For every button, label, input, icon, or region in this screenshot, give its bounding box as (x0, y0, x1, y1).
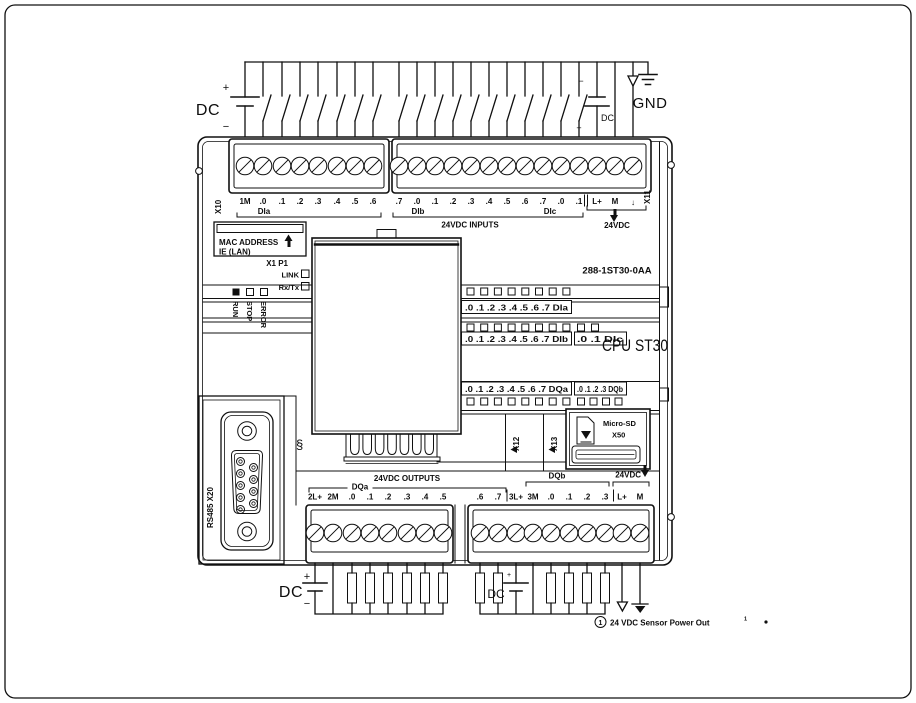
port-x1p1-label: X1 P1 (266, 259, 288, 268)
terminal-label: .7 (540, 197, 547, 206)
battery-plates (504, 583, 528, 591)
terminal-label: .0 (558, 197, 565, 206)
dc2-source-label: DC (487, 587, 505, 601)
load-wires-a (315, 563, 443, 614)
terminal-label: 3L+ (509, 493, 523, 502)
stop-label: STOP (245, 301, 254, 321)
input-wiring: + − DC − + DC GND (196, 62, 668, 141)
dia-row-label: .0 .1 .2 .3 .4 .5 .6 .7 DIa (465, 304, 569, 313)
terminal-label: .5 (352, 197, 359, 206)
terminal-label: .2 (450, 197, 457, 206)
terminal-label: .0 (548, 493, 555, 502)
cpu-model-label: CPU ST30 (602, 337, 668, 355)
terminal-label: .3 (404, 493, 411, 502)
terminal-label: L+ (592, 197, 602, 206)
terminal-label: 3M (527, 493, 538, 502)
input-terminal-strip-b (390, 139, 651, 193)
sensor-out-ground-icon (635, 606, 645, 613)
shield-clamp-icon: § (296, 437, 303, 452)
sensor-out-arrow-icon (617, 602, 627, 611)
gnd-label: GND (633, 95, 668, 112)
terminal-label: .1 (367, 493, 374, 502)
edge-pin (668, 162, 675, 169)
terminal-label: .1 (279, 197, 286, 206)
input-terminal-strip-a (229, 139, 389, 193)
output-loads (348, 573, 610, 603)
dc-source-label: DC (279, 584, 303, 601)
ie-lan-label: IE (LAN) (219, 248, 251, 257)
power-arrow-icon (614, 209, 617, 215)
sensor-supply-arrow-icon (628, 76, 638, 86)
terminal-label: .1 (566, 493, 573, 502)
terminal-label: .4 (486, 197, 493, 206)
earth-ground-icon (639, 75, 657, 85)
power-caption: 24VDC (615, 471, 641, 480)
link-led-label: LINK (282, 271, 300, 280)
connector-x11-label: X11 (643, 190, 652, 204)
switch-contacts (263, 95, 587, 121)
footnote-ref: 1 (599, 620, 603, 627)
terminal-label: .0 (414, 197, 421, 206)
power-wires (245, 62, 633, 141)
terminal-label: .6 (522, 197, 529, 206)
functional-earth-label: ↓ (631, 198, 635, 207)
inputs-caption: 24VDC INPUTS (441, 221, 499, 230)
output-terminal-strip-b (468, 505, 654, 563)
supply-rail (245, 62, 648, 74)
micro-sd-slot[interactable]: Micro-SD X50 (566, 409, 650, 469)
run-led (233, 289, 240, 296)
footnote: 1 24 VDC Sensor Power Out 1 (595, 617, 768, 628)
terminal-label: .0 (260, 197, 267, 206)
dc2-source-label: DC (601, 113, 614, 123)
terminal-label: .1 (576, 197, 583, 206)
terminal-label: .5 (440, 493, 447, 502)
terminal-label: L+ (617, 493, 627, 502)
dc2-plus-label: + (576, 123, 581, 133)
output-terminal-strip-a (306, 505, 453, 563)
terminal-label: .3 (468, 197, 475, 206)
terminal-label: .6 (370, 197, 377, 206)
terminal-label: .5 (504, 197, 511, 206)
wiring-diagram-page: + − DC − + DC GND 1M .0 .1 (0, 0, 916, 703)
group-label-dia: DIa (258, 207, 271, 216)
rs485-label: RS485 X20 (206, 487, 215, 528)
up-arrow-icon (288, 240, 291, 247)
cpu-st30-wiring-diagram: + − DC − + DC GND 1M .0 .1 (0, 0, 916, 703)
terminal-label: .2 (297, 197, 304, 206)
dqb-caption: DQb (549, 472, 566, 481)
mac-address-label: MAC ADDRESS (219, 238, 279, 247)
door-panel (312, 238, 461, 434)
footnote-text: 24 VDC Sensor Power Out (610, 619, 710, 628)
terminal-label: .3 (602, 493, 609, 502)
terminal-label: 2L+ (308, 493, 322, 502)
sd-port-label: X50 (612, 431, 625, 440)
front-door[interactable] (312, 230, 461, 435)
dc-minus-label: − (304, 598, 310, 610)
door-tab (377, 230, 396, 239)
dc2-plus-label: + (507, 572, 511, 579)
rxtx-led-label: Rx/Tx (279, 283, 300, 292)
dqa-caption: DQa (352, 483, 369, 492)
order-number: 288-1ST30-0AA (582, 266, 651, 277)
terminal-label: .3 (315, 197, 322, 206)
output-wiring: + − DC + DC (279, 563, 648, 614)
sd-label: Micro-SD (603, 419, 637, 428)
terminal-label: M (637, 493, 644, 502)
terminal-label: 2M (327, 493, 338, 502)
connector-x10-label: X10 (214, 199, 223, 214)
terminal-label: .2 (385, 493, 392, 502)
edge-pin2 (668, 514, 675, 521)
terminal-label: 1M (239, 197, 250, 206)
battery-plates (303, 583, 327, 591)
dib-row-label: .0 .1 .2 .3 .4 .5 .6 .7 DIb (465, 335, 568, 344)
power-arrow-icon (644, 465, 647, 470)
terminal-label: .7 (396, 197, 403, 206)
footnote-sup: 1 (744, 617, 747, 623)
edge-pin3 (196, 168, 203, 175)
terminal-label: .6 (477, 493, 484, 502)
dc2-minus-label: − (578, 76, 583, 86)
group-label-dic: DIc (544, 207, 557, 216)
dot (764, 620, 767, 623)
terminal-label: .0 (349, 493, 356, 502)
power-caption: 24VDC (604, 221, 630, 230)
outputs-caption: 24VDC OUTPUTS (374, 474, 441, 483)
error-label: ERROR (259, 301, 268, 329)
dc-plus-label: + (223, 82, 229, 94)
dqa-row-label: .0 .1 .2 .3 .4 .5 .6 .7 DQa (465, 385, 569, 394)
run-label: RUN (231, 301, 240, 317)
dc-plus-label: + (304, 571, 310, 583)
terminal-label: .4 (422, 493, 429, 502)
terminal-label: .1 (432, 197, 439, 206)
terminal-label: .2 (584, 493, 591, 502)
switch-wires-upper (263, 62, 579, 96)
terminal-label: .7 (495, 493, 502, 502)
dqb-row-label: .0 .1 .2 .3 DQb (577, 385, 623, 394)
terminal-label: M (612, 197, 619, 206)
terminal-label: .4 (334, 197, 341, 206)
dc-minus-label: − (223, 121, 229, 133)
group-label-dib: DIb (412, 207, 425, 216)
dc-source-label: DC (196, 102, 220, 119)
sd-box (566, 409, 650, 469)
